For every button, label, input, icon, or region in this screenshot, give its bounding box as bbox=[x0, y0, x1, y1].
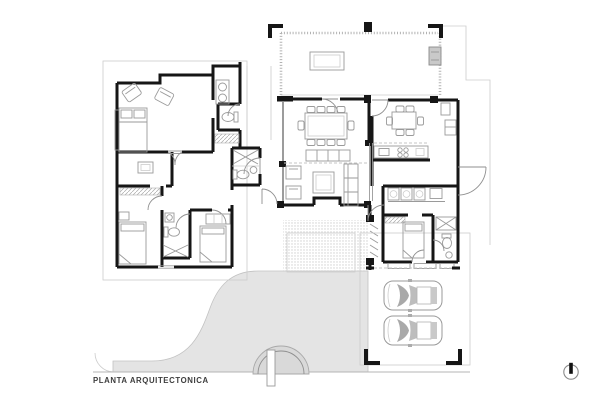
roof-right bbox=[440, 26, 490, 245]
sink bbox=[219, 94, 227, 102]
vanity-counter bbox=[216, 80, 229, 104]
bed bbox=[200, 226, 226, 262]
master-bedroom-furniture bbox=[115, 83, 174, 152]
car-1 bbox=[384, 279, 442, 312]
armchair bbox=[121, 83, 142, 103]
sofa bbox=[344, 164, 358, 206]
terrace bbox=[270, 22, 441, 95]
gate-post bbox=[267, 350, 275, 386]
dressing-room-furniture bbox=[138, 162, 153, 173]
bedroom2-door bbox=[148, 196, 162, 210]
sink bbox=[446, 252, 452, 258]
service-bedroom-furniture bbox=[403, 222, 424, 258]
front-door bbox=[262, 189, 277, 204]
bedroom2-furniture bbox=[119, 212, 146, 264]
step-ticks bbox=[370, 224, 378, 257]
side-entry-door bbox=[458, 167, 486, 195]
kitchen-furniture bbox=[374, 103, 456, 158]
roof-left-wing bbox=[103, 61, 247, 280]
bed bbox=[403, 222, 424, 258]
armchair bbox=[154, 87, 174, 106]
sideboard bbox=[306, 150, 350, 161]
dining-table bbox=[305, 113, 347, 139]
bbq-grill bbox=[429, 47, 441, 65]
powder-room-fixtures bbox=[232, 150, 260, 179]
plan-title: PLANTA ARQUITECTONICA bbox=[93, 376, 209, 385]
service-walls bbox=[372, 160, 458, 262]
car-2 bbox=[384, 314, 442, 347]
terrace-column-n bbox=[364, 22, 372, 32]
garage-corner-se bbox=[446, 349, 462, 363]
service-closet bbox=[385, 217, 405, 223]
master-closet bbox=[215, 134, 239, 143]
toilet bbox=[222, 112, 238, 122]
skylight bbox=[310, 52, 344, 70]
master-bed bbox=[119, 108, 147, 152]
kitchen-sink bbox=[379, 149, 389, 156]
bed bbox=[119, 222, 146, 264]
bathroom-fixtures bbox=[163, 213, 188, 257]
dresser bbox=[206, 214, 230, 224]
driveway-curb bbox=[95, 353, 114, 372]
driveway-surface bbox=[113, 271, 368, 372]
armchair bbox=[286, 166, 301, 179]
bath-door bbox=[176, 214, 190, 228]
dresser bbox=[138, 162, 153, 173]
sink bbox=[167, 215, 173, 221]
terrace-corner-ne bbox=[428, 26, 441, 38]
garage bbox=[364, 268, 462, 363]
armchair bbox=[286, 186, 301, 199]
service-bedroom-door bbox=[412, 250, 424, 262]
laundry-appliances bbox=[388, 188, 445, 202]
fridge bbox=[445, 120, 456, 135]
floor-plan-sheet: PLANTA ARQUITECTONICA bbox=[0, 0, 600, 400]
pantry-door bbox=[372, 100, 388, 116]
toilet bbox=[442, 234, 452, 249]
bedroom-walls bbox=[117, 152, 232, 267]
toilet bbox=[164, 227, 180, 237]
nightstand bbox=[119, 212, 129, 220]
coffee-table bbox=[313, 172, 334, 193]
shower bbox=[163, 245, 188, 257]
service-bath-fixtures bbox=[436, 217, 456, 258]
sink bbox=[250, 167, 257, 174]
north-arrow-icon bbox=[564, 363, 578, 379]
entry-courtyard bbox=[283, 220, 378, 272]
floor-plan-canvas: PLANTA ARQUITECTONICA bbox=[0, 0, 600, 400]
wing-south-window bbox=[158, 266, 174, 268]
wall-oven bbox=[441, 103, 450, 115]
roof-walkway bbox=[247, 66, 271, 140]
bedroom-closet bbox=[120, 188, 160, 195]
garage-corner-sw bbox=[364, 349, 380, 363]
shower bbox=[233, 150, 258, 164]
breakfast-table bbox=[387, 106, 424, 136]
sink bbox=[219, 83, 227, 91]
laundry-sink bbox=[430, 189, 442, 199]
left-wing-walls bbox=[117, 62, 240, 267]
kitchen-counter bbox=[374, 146, 428, 158]
terrace-screen bbox=[281, 33, 440, 95]
dining-furniture bbox=[298, 107, 354, 146]
